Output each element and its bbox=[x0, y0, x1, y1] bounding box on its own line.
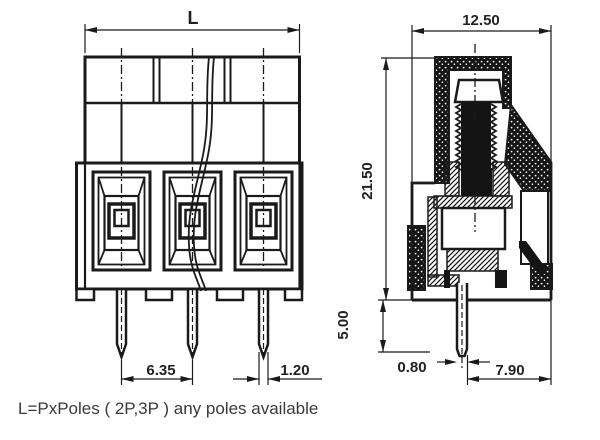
dim-label-pin-to-edge: 7.90 bbox=[495, 362, 524, 379]
thread-right bbox=[491, 104, 496, 170]
dim-label-pin-width: 1.20 bbox=[280, 362, 309, 379]
dim-label-pin-length: 5.00 bbox=[335, 310, 352, 339]
technical-drawing-page: L 6.35 1.20 bbox=[0, 0, 600, 440]
dimension-pin-length bbox=[378, 300, 430, 352]
front-view: L 6.35 1.20 bbox=[77, 8, 323, 385]
terminal-block-drawing: L 6.35 1.20 bbox=[0, 0, 600, 440]
wire-cavity bbox=[442, 208, 505, 249]
dim-label-pin-thickness: 0.80 bbox=[397, 359, 426, 376]
thread-left bbox=[456, 104, 461, 170]
drawing-note: L=PxPoles ( 2P,3P ) any poles available bbox=[18, 399, 318, 418]
dim-label-pitch: 6.35 bbox=[146, 362, 175, 379]
dim-label-depth: 12.50 bbox=[462, 12, 500, 29]
solder-pins bbox=[117, 289, 268, 361]
side-section-view: 12.50 21.50 5.00 0.80 bbox=[335, 12, 552, 385]
solder-pin-side bbox=[457, 283, 467, 368]
dim-label-height: 21.50 bbox=[359, 162, 376, 200]
clamp-foot-right bbox=[495, 270, 507, 288]
clamp-foot-left bbox=[444, 270, 450, 288]
dim-label-L: L bbox=[188, 8, 199, 28]
dimension-pin-thickness bbox=[437, 359, 490, 365]
